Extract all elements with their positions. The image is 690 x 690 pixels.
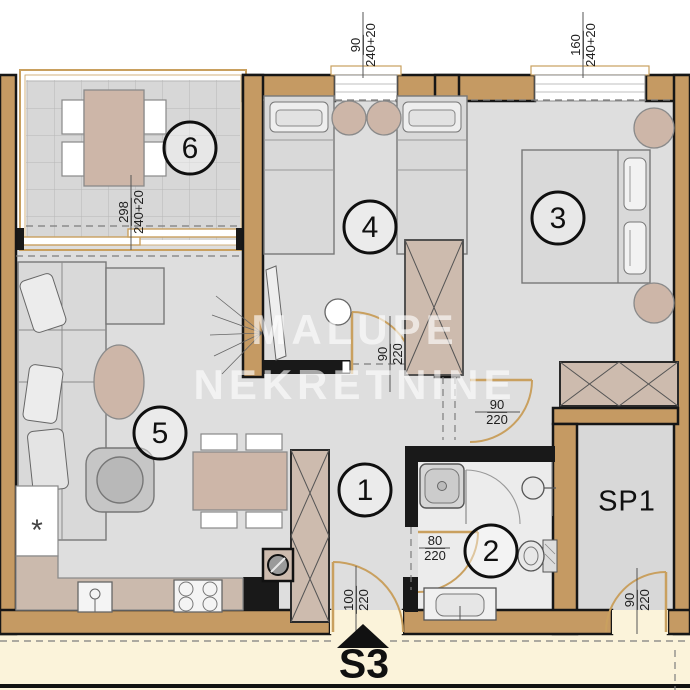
- window-room3: [531, 66, 649, 101]
- boiler: [263, 549, 293, 581]
- storage-label: SP1: [598, 486, 656, 519]
- coffee-table: [94, 345, 144, 419]
- room-label-balcony: 6: [182, 132, 199, 165]
- entrance-label: S3: [339, 641, 389, 688]
- floor-plan: 1 2 3 4 5 6 * 90240+20 160240+20 298240+…: [0, 0, 690, 690]
- window-room4: [331, 66, 401, 101]
- stove: [174, 580, 222, 612]
- dim-door-bathroom: 80220: [421, 534, 449, 562]
- nightstand: [634, 283, 674, 323]
- bed-single-right: [397, 96, 467, 254]
- room3-wardrobe: [560, 362, 678, 406]
- room-label-hallway: 1: [357, 474, 374, 507]
- kitchen-sink: [78, 582, 112, 612]
- room-label-bedroom1: 3: [550, 202, 567, 235]
- dim-balcony-opening: 298240+20: [117, 187, 145, 237]
- dim-window-room3: 160240+20: [569, 20, 597, 70]
- shower: [420, 464, 464, 508]
- room-label-living: 5: [152, 417, 169, 450]
- hall-wardrobe: [291, 450, 329, 622]
- fridge-symbol: *: [31, 514, 43, 547]
- room-label-bathroom: 2: [483, 535, 500, 568]
- stool: [332, 101, 366, 135]
- armchair: [86, 448, 154, 512]
- dim-window-room4: 90240+20: [349, 20, 377, 70]
- dim-door-room4: 90220: [376, 340, 404, 368]
- toilet: [518, 540, 557, 572]
- stool: [367, 101, 401, 135]
- dim-door-room3: 90220: [483, 398, 511, 426]
- dim-door-sp1: 90220: [623, 586, 651, 614]
- room4-wardrobe: [405, 240, 463, 375]
- side-table: [325, 299, 351, 325]
- dim-door-entrance: 100220: [342, 586, 370, 614]
- room-label-bedroom2: 4: [362, 211, 379, 244]
- nightstand: [634, 108, 674, 148]
- bed-single-left: [264, 96, 334, 254]
- washing-machine: [424, 588, 496, 620]
